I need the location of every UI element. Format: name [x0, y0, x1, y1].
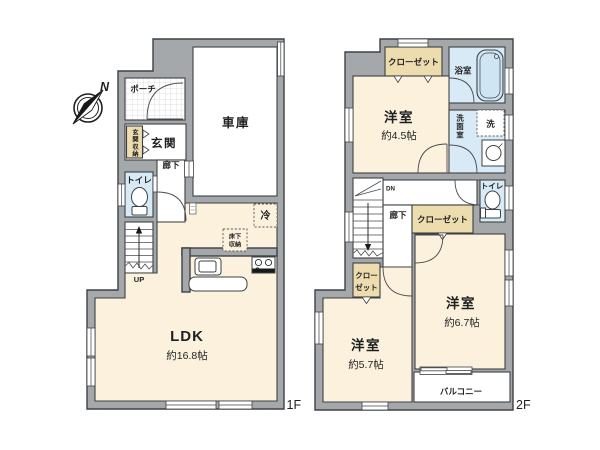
bathroom-label: 浴室 — [454, 66, 472, 76]
window — [505, 115, 513, 140]
closet-top-label: クローゼット — [388, 57, 439, 67]
window — [278, 42, 285, 76]
window — [315, 312, 323, 344]
balcony-label: バルコニー — [440, 387, 482, 397]
closet-hall-label: クローゼット — [417, 215, 468, 225]
underfloor-label-1: 床下 — [229, 233, 241, 241]
toilet-1f-label: トイレ — [126, 175, 152, 185]
bedroom-b-label: 洋室 — [446, 295, 476, 311]
entrance-storage-label: 玄関収納 — [131, 128, 138, 158]
stairs-up-label: UP — [134, 275, 144, 284]
hallway-2f-a — [383, 180, 477, 205]
washroom-label: 洗面室 — [455, 113, 464, 140]
floorplan-canvas: ポーチ 玄関 玄関収納 廊下 トイレ 車庫 冷 床下 収納 LDK 約16.8帖… — [0, 0, 600, 450]
toilet-fixture-1f — [132, 188, 148, 216]
hallway-2f-label: 廊下 — [389, 210, 407, 220]
toilet-2f-label: トイレ — [481, 182, 504, 191]
bedroom-c-size-label: 約5.7帖 — [348, 358, 384, 371]
hallway-1f-label: 廊下 — [162, 160, 180, 170]
window — [219, 401, 252, 409]
balcony-sliding-door — [420, 367, 472, 375]
window — [398, 39, 428, 47]
window — [345, 212, 353, 242]
floorplan-svg: ポーチ 玄関 玄関収納 廊下 トイレ 車庫 冷 床下 収納 LDK 約16.8帖… — [0, 0, 600, 450]
closet-small-label-1: クロー — [355, 270, 378, 280]
stairs-down-label: DN — [386, 186, 395, 193]
window — [505, 250, 513, 276]
floor1-plan: ポーチ 玄関 玄関収納 廊下 トイレ 車庫 冷 床下 収納 LDK 約16.8帖… — [87, 39, 301, 412]
window — [362, 402, 388, 410]
window — [505, 280, 513, 306]
kitchen-sink — [195, 258, 221, 275]
floor2-plan: クローゼット 浴室 洋室 約4.5帖 洗面室 洗 トイレ DN 廊下 クローゼッ… — [315, 39, 531, 412]
window — [505, 68, 513, 94]
bedroom-c-label: 洋室 — [351, 337, 381, 353]
entry-step-board — [190, 203, 197, 214]
window — [166, 401, 216, 409]
compass: N — [73, 80, 110, 124]
floor1-label: 1F — [287, 398, 302, 412]
window — [118, 184, 125, 206]
kitchen-stove — [252, 257, 275, 273]
kitchen-counter — [189, 277, 247, 291]
washbasin — [482, 140, 505, 166]
bathtub — [477, 50, 503, 101]
window — [87, 358, 95, 386]
garage-label: 車庫 — [222, 115, 250, 130]
entrance-label: 玄関 — [151, 136, 177, 150]
porch-label: ポーチ — [130, 84, 156, 94]
bedroom-a-size-label: 約4.5帖 — [381, 129, 417, 142]
window — [345, 108, 353, 142]
closet-small-label-2: ゼット — [355, 282, 378, 292]
floor2-label: 2F — [516, 398, 531, 412]
toilet-door-1f — [153, 176, 157, 192]
window — [505, 186, 513, 210]
underfloor-label-2: 収納 — [229, 241, 241, 249]
ldk-label: LDK — [170, 328, 204, 345]
hall-to-garage-door — [185, 161, 194, 177]
washer-label: 洗 — [486, 119, 495, 129]
window — [87, 328, 95, 356]
compass-north-label: N — [100, 80, 110, 94]
ldk-size-label: 約16.8帖 — [166, 349, 208, 362]
bedroom-b-size-label: 約6.7帖 — [444, 316, 480, 329]
fridge-label: 冷 — [261, 209, 271, 222]
bedroom-a-label: 洋室 — [384, 109, 414, 125]
